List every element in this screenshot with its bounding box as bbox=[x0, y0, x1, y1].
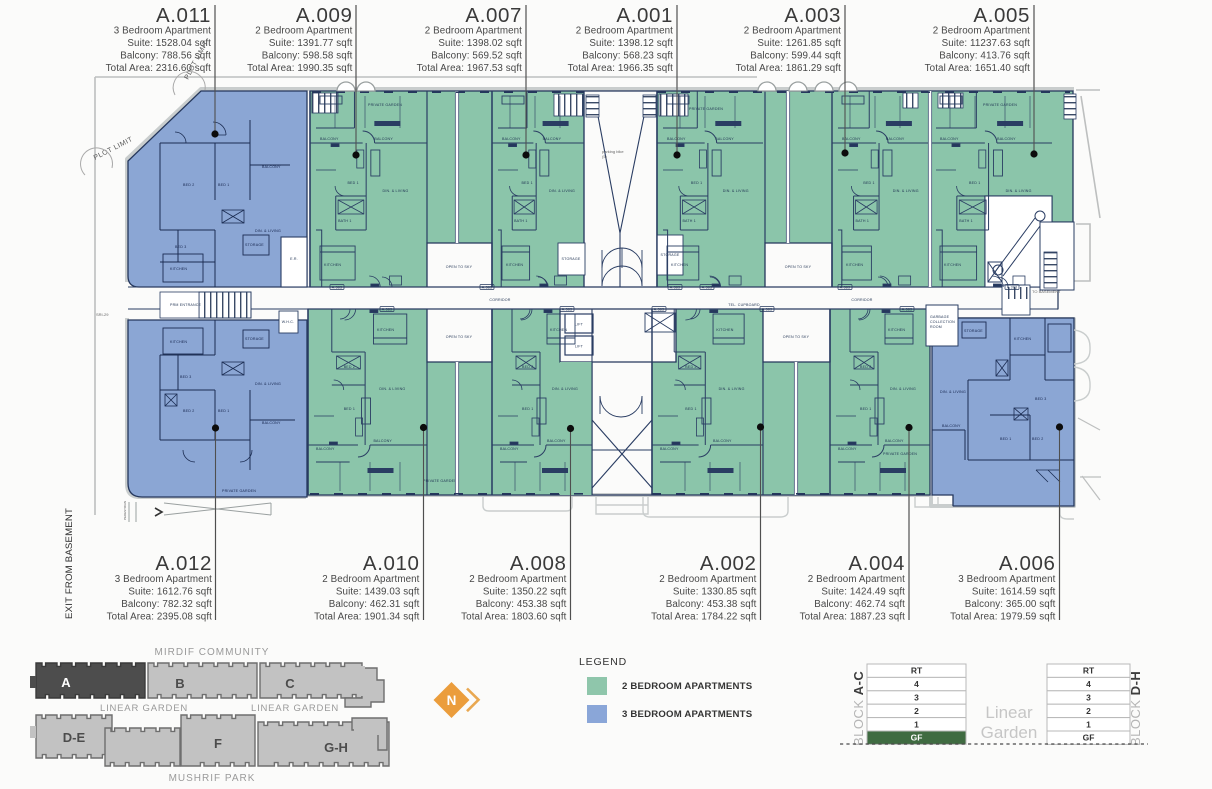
svg-text:2: 2 bbox=[1086, 706, 1091, 716]
svg-text:A.002: A.002 bbox=[700, 552, 757, 575]
svg-text:3 Bedroom Apartment: 3 Bedroom Apartment bbox=[958, 574, 1055, 585]
svg-text:Linear: Linear bbox=[985, 703, 1033, 722]
svg-text:BALCONY: BALCONY bbox=[715, 137, 734, 141]
svg-text:A.010: A.010 bbox=[363, 552, 420, 575]
svg-text:BATH 1: BATH 1 bbox=[514, 219, 528, 223]
svg-text:KITCHEN: KITCHEN bbox=[377, 328, 394, 332]
svg-text:Balcony: 462.31 sqft: Balcony: 462.31 sqft bbox=[329, 599, 420, 610]
svg-text:BED 3: BED 3 bbox=[180, 375, 191, 379]
svg-text:DIN. & LIVING: DIN. & LIVING bbox=[893, 189, 919, 193]
svg-text:A.383: A.383 bbox=[902, 308, 912, 312]
svg-text:BALCONY: BALCONY bbox=[886, 137, 905, 141]
svg-text:Total Area: 1966.35 sqft: Total Area: 1966.35 sqft bbox=[568, 63, 674, 74]
svg-text:TEL. CUPBOARD: TEL. CUPBOARD bbox=[728, 303, 760, 307]
svg-text:A.005: A.005 bbox=[973, 4, 1030, 27]
svg-text:Suite: 1614.59 sqft: Suite: 1614.59 sqft bbox=[972, 587, 1056, 598]
svg-text:A.008: A.008 bbox=[510, 552, 567, 575]
svg-text:LIFT: LIFT bbox=[575, 323, 584, 327]
svg-text:A.383: A.383 bbox=[332, 286, 342, 290]
svg-text:LINEAR GARDEN: LINEAR GARDEN bbox=[251, 703, 339, 714]
svg-text:2 BEDROOM APARTMENTS: 2 BEDROOM APARTMENTS bbox=[622, 681, 753, 692]
svg-text:Balcony: 568.23 sqft: Balcony: 568.23 sqft bbox=[582, 51, 673, 62]
svg-text:BALCONY: BALCONY bbox=[885, 439, 904, 443]
svg-text:BALCONY: BALCONY bbox=[320, 137, 339, 141]
svg-text:A.006: A.006 bbox=[999, 552, 1056, 575]
svg-text:BALCONY: BALCONY bbox=[543, 137, 562, 141]
svg-text:A.004: A.004 bbox=[848, 552, 905, 575]
svg-text:CORRIDOR: CORRIDOR bbox=[489, 298, 510, 302]
svg-text:2 Bedroom Apartment: 2 Bedroom Apartment bbox=[808, 574, 905, 585]
svg-text:Suite: 1439.03 sqft: Suite: 1439.03 sqft bbox=[336, 587, 420, 598]
svg-text:2 Bedroom Apartment: 2 Bedroom Apartment bbox=[322, 574, 419, 585]
svg-text:PEDESTRIAN: PEDESTRIAN bbox=[123, 501, 127, 520]
svg-text:BED 1: BED 1 bbox=[969, 181, 980, 185]
svg-text:CORRIDOR: CORRIDOR bbox=[851, 298, 872, 302]
svg-text:A.012: A.012 bbox=[155, 552, 212, 575]
svg-text:A.009: A.009 bbox=[296, 4, 353, 27]
svg-text:BED 1: BED 1 bbox=[218, 183, 229, 187]
svg-text:BALCONY: BALCONY bbox=[374, 137, 393, 141]
svg-text:KITCHEN: KITCHEN bbox=[888, 328, 905, 332]
svg-text:BALCONY: BALCONY bbox=[942, 424, 961, 428]
svg-text:3 Bedroom Apartment: 3 Bedroom Apartment bbox=[115, 574, 212, 585]
svg-text:BATH 1: BATH 1 bbox=[682, 219, 696, 223]
svg-text:Balcony: 599.44 sqft: Balcony: 599.44 sqft bbox=[750, 51, 841, 62]
svg-text:A.383: A.383 bbox=[840, 286, 850, 290]
svg-text:BED 1: BED 1 bbox=[218, 409, 229, 413]
svg-text:BED 1: BED 1 bbox=[691, 181, 702, 185]
svg-text:DIN. & LIVING: DIN. & LIVING bbox=[383, 189, 409, 193]
svg-text:F: F bbox=[214, 736, 222, 751]
svg-text:2 Bedroom Apartment: 2 Bedroom Apartment bbox=[744, 26, 841, 37]
svg-text:DIN. & LIVING: DIN. & LIVING bbox=[379, 387, 405, 391]
svg-text:GF: GF bbox=[1083, 733, 1095, 743]
svg-text:W.H.C.: W.H.C. bbox=[282, 320, 295, 324]
svg-text:DIN. & LIVING: DIN. & LIVING bbox=[255, 229, 281, 233]
svg-text:Total Area: 2395.08 sqft: Total Area: 2395.08 sqft bbox=[107, 612, 213, 623]
svg-text:E.R.: E.R. bbox=[290, 257, 298, 261]
svg-text:3 BEDROOM APARTMENTS: 3 BEDROOM APARTMENTS bbox=[622, 709, 753, 720]
svg-text:DIN. & LIVING: DIN. & LIVING bbox=[719, 387, 745, 391]
svg-text:Total Area: 1887.23 sqft: Total Area: 1887.23 sqft bbox=[800, 612, 906, 623]
svg-text:Suite: 1398.02 sqft: Suite: 1398.02 sqft bbox=[438, 38, 522, 49]
svg-text:ROOM: ROOM bbox=[930, 325, 942, 329]
svg-text:GARBAGE: GARBAGE bbox=[930, 315, 950, 319]
svg-text:Total Area: 1803.60 sqft: Total Area: 1803.60 sqft bbox=[461, 612, 567, 623]
svg-text:STORAGE: STORAGE bbox=[964, 329, 983, 333]
svg-text:BALCONY: BALCONY bbox=[502, 137, 521, 141]
svg-text:1: 1 bbox=[1086, 719, 1091, 729]
svg-text:BED 2: BED 2 bbox=[183, 409, 194, 413]
svg-text:B: B bbox=[175, 676, 184, 691]
svg-text:3: 3 bbox=[1086, 693, 1091, 703]
svg-text:Total Area: 1901.34 sqft: Total Area: 1901.34 sqft bbox=[314, 612, 420, 623]
svg-text:STORAGE: STORAGE bbox=[245, 337, 264, 341]
svg-text:COLLECTION: COLLECTION bbox=[930, 320, 955, 324]
svg-text:2 Bedroom Apartment: 2 Bedroom Apartment bbox=[255, 26, 352, 37]
svg-text:A.383: A.383 bbox=[654, 308, 664, 312]
svg-text:Balcony: 453.38 sqft: Balcony: 453.38 sqft bbox=[476, 599, 567, 610]
svg-text:A.383: A.383 bbox=[382, 308, 392, 312]
svg-text:BATH 1: BATH 1 bbox=[338, 219, 352, 223]
svg-text:BED 1: BED 1 bbox=[344, 407, 355, 411]
svg-text:BED 2: BED 2 bbox=[522, 365, 533, 369]
svg-text:Suite: 11237.63 sqft: Suite: 11237.63 sqft bbox=[942, 38, 1031, 49]
svg-text:Balcony: 782.32 sqft: Balcony: 782.32 sqft bbox=[121, 599, 212, 610]
svg-text:BALCONY: BALCONY bbox=[262, 165, 281, 169]
svg-text:EXIT FROM BASEMENT: EXIT FROM BASEMENT bbox=[64, 508, 75, 619]
svg-text:KITCHEN: KITCHEN bbox=[671, 263, 688, 267]
svg-text:2 Bedroom Apartment: 2 Bedroom Apartment bbox=[576, 26, 673, 37]
svg-text:4: 4 bbox=[914, 679, 919, 689]
svg-text:KITCHEN: KITCHEN bbox=[324, 263, 341, 267]
svg-text:OPEN TO SKY: OPEN TO SKY bbox=[785, 265, 812, 269]
svg-text:OPEN TO SKY: OPEN TO SKY bbox=[446, 265, 473, 269]
svg-text:BALCONY: BALCONY bbox=[316, 447, 335, 451]
svg-text:Total Area: 1861.29 sqft: Total Area: 1861.29 sqft bbox=[736, 63, 842, 74]
svg-text:DIN. & LIVING: DIN. & LIVING bbox=[255, 382, 281, 386]
svg-text:BALCONY: BALCONY bbox=[997, 137, 1016, 141]
svg-text:Total Area: 1979.59 sqft: Total Area: 1979.59 sqft bbox=[950, 612, 1056, 623]
svg-text:PRIVATE GARDEN: PRIVATE GARDEN bbox=[423, 479, 457, 483]
svg-text:Suite: 1261.85 sqft: Suite: 1261.85 sqft bbox=[757, 38, 841, 49]
svg-text:KITCHEN: KITCHEN bbox=[944, 263, 961, 267]
svg-text:Balcony: 598.58 sqft: Balcony: 598.58 sqft bbox=[262, 51, 353, 62]
svg-text:TO BASEMENT: TO BASEMENT bbox=[1032, 289, 1061, 294]
svg-text:STORAGE: STORAGE bbox=[245, 243, 264, 247]
svg-text:Suite: 1350.22 sqft: Suite: 1350.22 sqft bbox=[483, 587, 567, 598]
svg-text:BED 2: BED 2 bbox=[183, 183, 194, 187]
svg-text:BED 1: BED 1 bbox=[863, 181, 874, 185]
svg-text:DIN. & LIVING: DIN. & LIVING bbox=[549, 189, 575, 193]
svg-text:LINEAR GARDEN: LINEAR GARDEN bbox=[100, 703, 188, 714]
svg-text:DIN. & LIVING: DIN. & LIVING bbox=[552, 387, 578, 391]
svg-text:KITCHEN: KITCHEN bbox=[506, 263, 523, 267]
svg-text:A.001: A.001 bbox=[616, 4, 673, 27]
svg-text:Garden: Garden bbox=[981, 723, 1038, 742]
svg-text:Suite: 1330.85 sqft: Suite: 1330.85 sqft bbox=[673, 587, 757, 598]
svg-text:2: 2 bbox=[914, 706, 919, 716]
svg-text:RT: RT bbox=[911, 666, 923, 676]
svg-text:BLOCK D-H: BLOCK D-H bbox=[1128, 671, 1143, 746]
svg-text:2 Bedroom Apartment: 2 Bedroom Apartment bbox=[933, 26, 1030, 37]
svg-text:KITCHEN: KITCHEN bbox=[550, 328, 567, 332]
svg-text:2 Bedroom Apartment: 2 Bedroom Apartment bbox=[425, 26, 522, 37]
svg-text:3: 3 bbox=[914, 693, 919, 703]
svg-text:Total Area: 1967.53 sqft: Total Area: 1967.53 sqft bbox=[417, 63, 523, 74]
svg-text:OPEN TO SKY: OPEN TO SKY bbox=[446, 335, 473, 339]
svg-text:STORAGE: STORAGE bbox=[562, 257, 581, 261]
svg-text:BALCONY: BALCONY bbox=[373, 439, 392, 443]
svg-text:BALCONY: BALCONY bbox=[262, 421, 281, 425]
svg-text:A.003: A.003 bbox=[784, 4, 841, 27]
svg-text:PRIVATE GARDEN: PRIVATE GARDEN bbox=[883, 452, 917, 456]
svg-text:2 Bedroom Apartment: 2 Bedroom Apartment bbox=[469, 574, 566, 585]
svg-text:DIN. & LIVING: DIN. & LIVING bbox=[940, 390, 966, 394]
svg-text:BED 2: BED 2 bbox=[1032, 437, 1043, 441]
svg-text:2 Bedroom Apartment: 2 Bedroom Apartment bbox=[659, 574, 756, 585]
svg-text:RT: RT bbox=[1083, 666, 1095, 676]
svg-text:Balcony: 453.38 sqft: Balcony: 453.38 sqft bbox=[666, 599, 757, 610]
svg-text:3 Bedroom Apartment: 3 Bedroom Apartment bbox=[114, 26, 211, 37]
svg-text:A.383: A.383 bbox=[762, 308, 772, 312]
svg-text:Total Area: 1784.22 sqft: Total Area: 1784.22 sqft bbox=[651, 612, 757, 623]
svg-text:KITCHEN: KITCHEN bbox=[846, 263, 863, 267]
svg-text:A.383: A.383 bbox=[562, 308, 572, 312]
svg-text:BED 1: BED 1 bbox=[521, 181, 532, 185]
svg-text:A: A bbox=[61, 675, 71, 690]
svg-text:BALCONY: BALCONY bbox=[660, 447, 679, 451]
svg-text:N: N bbox=[447, 693, 457, 708]
svg-text:Balcony: 413.76 sqft: Balcony: 413.76 sqft bbox=[939, 51, 1030, 62]
svg-text:Suite: 1391.77 sqft: Suite: 1391.77 sqft bbox=[269, 38, 353, 49]
svg-text:BED 2: BED 2 bbox=[860, 365, 871, 369]
svg-text:MUSHRIF PARK: MUSHRIF PARK bbox=[169, 773, 256, 784]
svg-text:Suite: 1424.49 sqft: Suite: 1424.49 sqft bbox=[821, 587, 905, 598]
svg-text:Suite: 1398.12 sqft: Suite: 1398.12 sqft bbox=[589, 38, 673, 49]
svg-text:KITCHEN: KITCHEN bbox=[170, 340, 187, 344]
svg-text:BED 1: BED 1 bbox=[685, 407, 696, 411]
svg-text:KITCHEN: KITCHEN bbox=[716, 328, 733, 332]
svg-text:DIN. & LIVING: DIN. & LIVING bbox=[1006, 189, 1032, 193]
svg-text:Balcony: 462.74 sqft: Balcony: 462.74 sqft bbox=[814, 599, 905, 610]
svg-text:DIN. & LIVING: DIN. & LIVING bbox=[723, 189, 749, 193]
svg-text:Suite: 1612.76 sqft: Suite: 1612.76 sqft bbox=[128, 587, 212, 598]
svg-text:KITCHEN: KITCHEN bbox=[1014, 337, 1031, 341]
svg-text:BATH 1: BATH 1 bbox=[959, 219, 973, 223]
svg-text:PRIVATE GARDEN: PRIVATE GARDEN bbox=[983, 103, 1017, 107]
svg-text:Total Area: 1990.35 sqft: Total Area: 1990.35 sqft bbox=[247, 63, 353, 74]
svg-text:BALCONY: BALCONY bbox=[940, 137, 959, 141]
svg-text:Balcony: 365.00 sqft: Balcony: 365.00 sqft bbox=[965, 599, 1056, 610]
svg-text:G-H: G-H bbox=[324, 740, 348, 755]
svg-text:BED 1: BED 1 bbox=[1000, 437, 1011, 441]
svg-text:PRIVATE GARDEN: PRIVATE GARDEN bbox=[222, 489, 256, 493]
svg-text:Balcony: 569.52 sqft: Balcony: 569.52 sqft bbox=[431, 51, 522, 62]
svg-text:BALCONY: BALCONY bbox=[713, 439, 732, 443]
svg-text:A.383: A.383 bbox=[482, 286, 492, 290]
svg-text:4: 4 bbox=[1086, 679, 1091, 689]
svg-text:BALCONY: BALCONY bbox=[547, 439, 566, 443]
svg-text:D-E: D-E bbox=[63, 730, 86, 745]
svg-text:A.007: A.007 bbox=[465, 4, 522, 27]
svg-text:SRI-29: SRI-29 bbox=[96, 312, 109, 317]
svg-text:BED 1: BED 1 bbox=[860, 407, 871, 411]
svg-text:Total Area: 1651.40 sqft: Total Area: 1651.40 sqft bbox=[925, 63, 1031, 74]
svg-text:DIN. & LIVING: DIN. & LIVING bbox=[890, 387, 916, 391]
svg-text:(5): (5) bbox=[602, 154, 608, 159]
svg-text:BED 1: BED 1 bbox=[347, 181, 358, 185]
svg-text:LEGEND: LEGEND bbox=[579, 656, 627, 668]
svg-text:C: C bbox=[285, 676, 295, 691]
svg-text:BED 1: BED 1 bbox=[522, 407, 533, 411]
svg-text:LIFT: LIFT bbox=[575, 345, 584, 349]
svg-text:MIRDIF COMMUNITY: MIRDIF COMMUNITY bbox=[155, 647, 270, 658]
svg-text:BED 3: BED 3 bbox=[175, 245, 186, 249]
svg-text:GF: GF bbox=[911, 733, 923, 743]
svg-text:BALCONY: BALCONY bbox=[838, 447, 857, 451]
svg-text:A.011: A.011 bbox=[156, 4, 211, 27]
svg-text:OPEN TO SKY: OPEN TO SKY bbox=[783, 335, 810, 339]
svg-text:BLOCK A-C: BLOCK A-C bbox=[851, 671, 866, 746]
svg-text:KITCHEN: KITCHEN bbox=[170, 267, 187, 271]
svg-text:A.383: A.383 bbox=[670, 286, 680, 290]
svg-text:BED 3: BED 3 bbox=[1035, 397, 1046, 401]
svg-text:BATH 1: BATH 1 bbox=[856, 219, 870, 223]
svg-text:BALCONY: BALCONY bbox=[500, 447, 519, 451]
svg-text:PRIVATE GARDEN: PRIVATE GARDEN bbox=[368, 103, 402, 107]
svg-text:1: 1 bbox=[914, 719, 919, 729]
svg-text:PRIVATE GARDEN: PRIVATE GARDEN bbox=[689, 107, 723, 111]
svg-text:A.383: A.383 bbox=[702, 286, 712, 290]
svg-text:STORAGE: STORAGE bbox=[661, 253, 680, 257]
svg-text:PRM ENTRANCE: PRM ENTRANCE bbox=[170, 303, 202, 307]
